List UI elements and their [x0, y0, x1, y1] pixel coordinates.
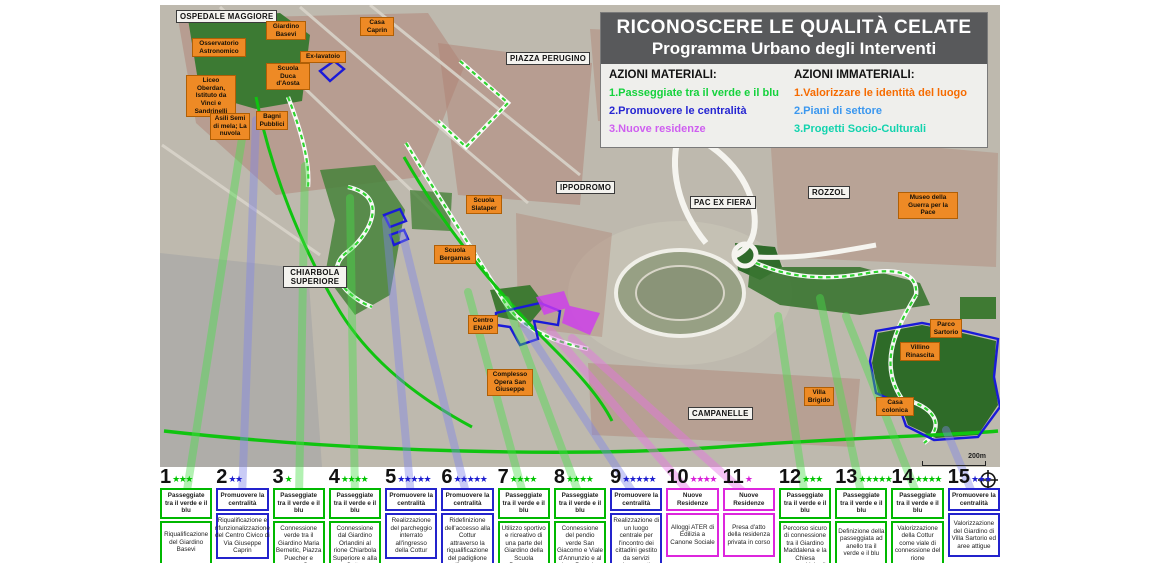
intervention-item: 5 ★★★★★ Promuovere la centralità Realizz…	[385, 469, 437, 563]
item-head: 13 ★★★★★	[835, 469, 887, 486]
item-head: 11 ★	[723, 469, 775, 486]
item-head: 3 ★	[273, 469, 325, 486]
item-head: 10 ★★★★	[666, 469, 718, 486]
item-number: 10	[666, 469, 688, 486]
item-number: 8	[554, 469, 565, 486]
item-category-box: Passeggiate tra il verde e il blu	[273, 488, 325, 519]
legend-immateriali-actions: 1.Valorizzare le identità del luogo2.Pia…	[794, 87, 979, 135]
legend-action: 1.Valorizzare le identità del luogo	[794, 87, 979, 99]
item-head: 4 ★★★★	[329, 469, 381, 486]
item-head: 1 ★★★	[160, 469, 212, 486]
item-head: 7 ★★★★	[498, 469, 550, 486]
intervention-item: 10 ★★★★ Nuove Residenze Alloggi ATER di …	[666, 469, 718, 563]
legend-action: 1.Passeggiate tra il verde e il blu	[609, 87, 794, 99]
item-head: 5 ★★★★★	[385, 469, 437, 486]
item-head: 14 ★★★★	[891, 469, 943, 486]
item-head: 12 ★★★	[779, 469, 831, 486]
item-category-box: Passeggiate tra il verde e il blu	[329, 488, 381, 519]
item-head: 8 ★★★★	[554, 469, 606, 486]
item-stars: ★★★	[802, 475, 822, 485]
item-description-box: Valorizzazione del Giardino di Villa Sar…	[948, 513, 1000, 557]
scale-label: 200m	[922, 453, 986, 460]
item-category-box: Promuovere la centralità	[441, 488, 493, 511]
item-category-box: Passeggiate tra il verde e il blu	[498, 488, 550, 519]
intervention-item: 3 ★ Passeggiate tra il verde e il blu Co…	[273, 469, 325, 563]
item-number: 15	[948, 469, 970, 486]
legend-panel: RICONOSCERE LE QUALITÀ CELATE Programma …	[600, 12, 988, 148]
item-description-box: Alloggi ATER di Edilizia a Canone Social…	[666, 513, 718, 557]
legend-col-immateriali: AZIONI IMMATERIALI: 1.Valorizzare le ide…	[794, 69, 979, 141]
intervention-item: 15 ★★★ Promuovere la centralità Valorizz…	[948, 469, 1000, 563]
item-number: 13	[835, 469, 857, 486]
legend-action: 3.Nuove residenze	[609, 123, 794, 135]
item-description-box: Riqualificazione e rifunzionalizzazione …	[216, 513, 268, 559]
item-category-box: Passeggiate tra il verde e il blu	[779, 488, 831, 519]
legend-title-line2: Programma Urbano degli Interventi	[603, 39, 985, 59]
item-number: 3	[273, 469, 284, 486]
item-description-box: Connessione del pendio verde San Giacomo…	[554, 521, 606, 563]
legend-immateriali-header: AZIONI IMMATERIALI:	[794, 69, 979, 81]
item-number: 11	[723, 469, 744, 486]
item-description-box: Riqualificazione del Giardino Basevi	[160, 521, 212, 563]
item-category-box: Passeggiate tra il verde e il blu	[554, 488, 606, 519]
items-row: 1 ★★★ Passeggiate tra il verde e il blu …	[160, 469, 1000, 563]
legend-title-line1: RICONOSCERE LE QUALITÀ CELATE	[603, 17, 985, 39]
item-description-box: Ridefinizione dell'accesso alla Cottur a…	[441, 513, 493, 563]
item-stars: ★	[745, 475, 752, 485]
intervention-item: 13 ★★★★★ Passeggiate tra il verde e il b…	[835, 469, 887, 563]
item-stars: ★	[285, 475, 292, 485]
item-category-box: Passeggiate tra il verde e il blu	[835, 488, 887, 519]
legend-materiali-actions: 1.Passeggiate tra il verde e il blu2.Pro…	[609, 87, 794, 135]
item-stars: ★★★★	[341, 475, 367, 485]
item-stars: ★★★★	[510, 475, 536, 485]
item-category-box: Promuovere la centralità	[385, 488, 437, 511]
item-stars: ★★★	[172, 475, 192, 485]
intervention-item: 7 ★★★★ Passeggiate tra il verde e il blu…	[498, 469, 550, 563]
item-stars: ★★★★★	[453, 475, 486, 485]
item-category-box: Promuovere la centralità	[948, 488, 1000, 511]
item-description-box: Connessione verde tra il Giardino Maria …	[273, 521, 325, 563]
item-stars: ★★	[228, 475, 241, 485]
item-stars: ★★★★★	[858, 475, 891, 485]
item-category-box: Passeggiate tra il verde e il blu	[160, 488, 212, 519]
intervention-item: 14 ★★★★ Passeggiate tra il verde e il bl…	[891, 469, 943, 563]
item-number: 1	[160, 469, 171, 486]
intervention-item: 9 ★★★★★ Promuovere la centralità Realizz…	[610, 469, 662, 563]
item-category-box: Nuove Residenze	[723, 488, 775, 511]
item-number: 7	[498, 469, 509, 486]
poster-canvas: OSPEDALE MAGGIOREGiardino BaseviCasa Cap…	[0, 0, 1156, 563]
item-description-box: Percorso sicuro di connessione tra il Gi…	[779, 521, 831, 563]
item-description-box: Realizzazione del parcheggio interrato a…	[385, 513, 437, 559]
item-number: 4	[329, 469, 340, 486]
legend-action: 3.Progetti Socio-Culturali	[794, 123, 979, 135]
item-description-box: Presa d'atto della residenza privata in …	[723, 513, 775, 557]
item-number: 14	[891, 469, 913, 486]
item-number: 2	[216, 469, 227, 486]
item-stars: ★★★★★	[397, 475, 430, 485]
legend-title: RICONOSCERE LE QUALITÀ CELATE Programma …	[601, 13, 987, 64]
scale-bar: 200m	[922, 453, 986, 466]
item-number: 9	[610, 469, 621, 486]
item-head: 6 ★★★★★	[441, 469, 493, 486]
item-description-box: Definizione della passeggiata ad anello …	[835, 521, 887, 563]
item-category-box: Promuovere la centralità	[216, 488, 268, 511]
intervention-item: 12 ★★★ Passeggiate tra il verde e il blu…	[779, 469, 831, 563]
item-stars: ★★★★	[566, 475, 592, 485]
legend-col-materiali: AZIONI MATERIALI: 1.Passeggiate tra il v…	[609, 69, 794, 141]
item-category-box: Passeggiate tra il verde e il blu	[891, 488, 943, 519]
item-number: 5	[385, 469, 396, 486]
item-head: 2 ★★	[216, 469, 268, 486]
item-stars: ★★★★★	[622, 475, 655, 485]
item-description-box: Valorizzazione della Cottur come viale d…	[891, 521, 943, 563]
item-stars: ★★★	[971, 475, 991, 485]
item-stars: ★★★★	[915, 475, 941, 485]
item-description-box: Realizzazione di un luogo centrale per l…	[610, 513, 662, 563]
item-description-box: Connessione dal Giardino Orlandini al ri…	[329, 521, 381, 563]
legend-body: AZIONI MATERIALI: 1.Passeggiate tra il v…	[601, 64, 987, 147]
intervention-item: 11 ★ Nuove Residenze Presa d'atto della …	[723, 469, 775, 563]
intervention-item: 6 ★★★★★ Promuovere la centralità Ridefin…	[441, 469, 493, 563]
item-description-box: Utilizzo sportivo e ricreativo di una pa…	[498, 521, 550, 563]
intervention-item: 4 ★★★★ Passeggiate tra il verde e il blu…	[329, 469, 381, 563]
item-number: 6	[441, 469, 452, 486]
map-hippodrome	[616, 250, 744, 336]
item-number: 12	[779, 469, 801, 486]
legend-action: 2.Piani di settore	[794, 105, 979, 117]
intervention-item: 2 ★★ Promuovere la centralità Riqualific…	[216, 469, 268, 563]
intervention-item: 1 ★★★ Passeggiate tra il verde e il blu …	[160, 469, 212, 563]
item-stars: ★★★★	[690, 475, 716, 485]
item-category-box: Promuovere la centralità	[610, 488, 662, 511]
intervention-item: 8 ★★★★ Passeggiate tra il verde e il blu…	[554, 469, 606, 563]
item-category-box: Nuove Residenze	[666, 488, 718, 511]
item-head: 9 ★★★★★	[610, 469, 662, 486]
legend-action: 2.Promuovere le centralità	[609, 105, 794, 117]
item-head: 15 ★★★	[948, 469, 1000, 486]
legend-materiali-header: AZIONI MATERIALI:	[609, 69, 794, 81]
